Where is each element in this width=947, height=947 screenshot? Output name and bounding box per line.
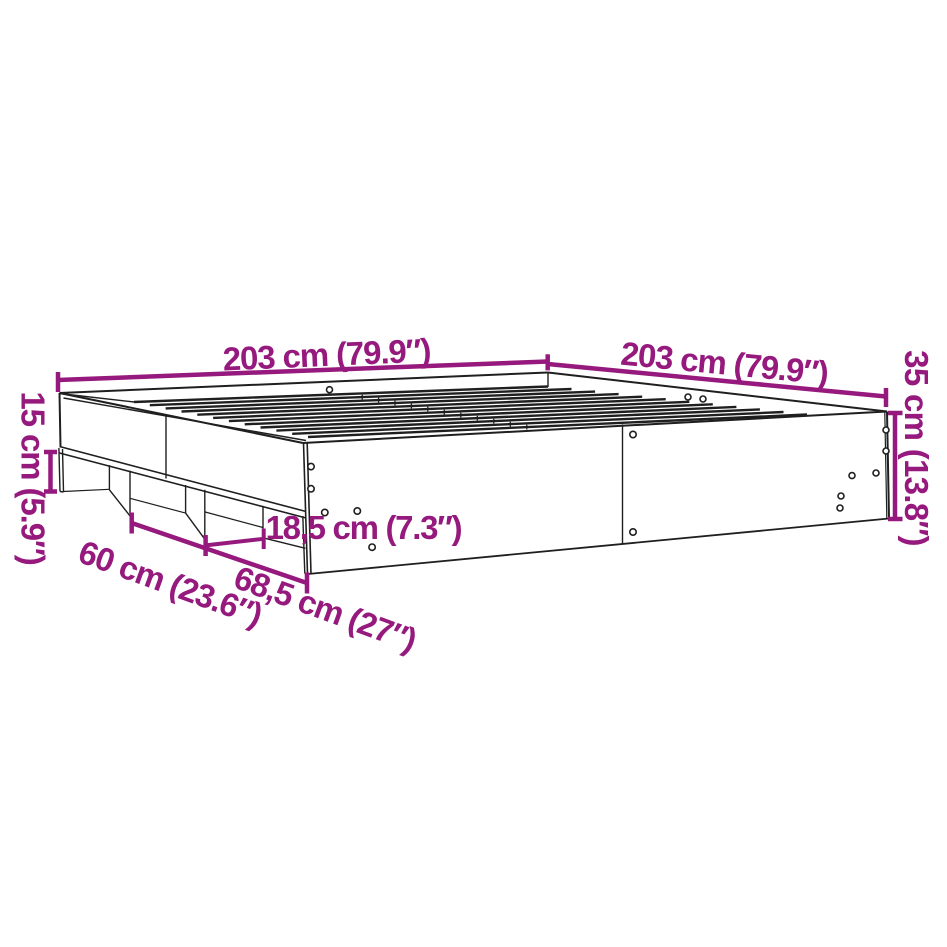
svg-text:18,5 cm (7.3″): 18,5 cm (7.3″)	[266, 509, 462, 546]
svg-text:15 cm (5.9″): 15 cm (5.9″)	[15, 391, 52, 564]
svg-text:35 cm (13.8″): 35 cm (13.8″)	[898, 350, 935, 546]
